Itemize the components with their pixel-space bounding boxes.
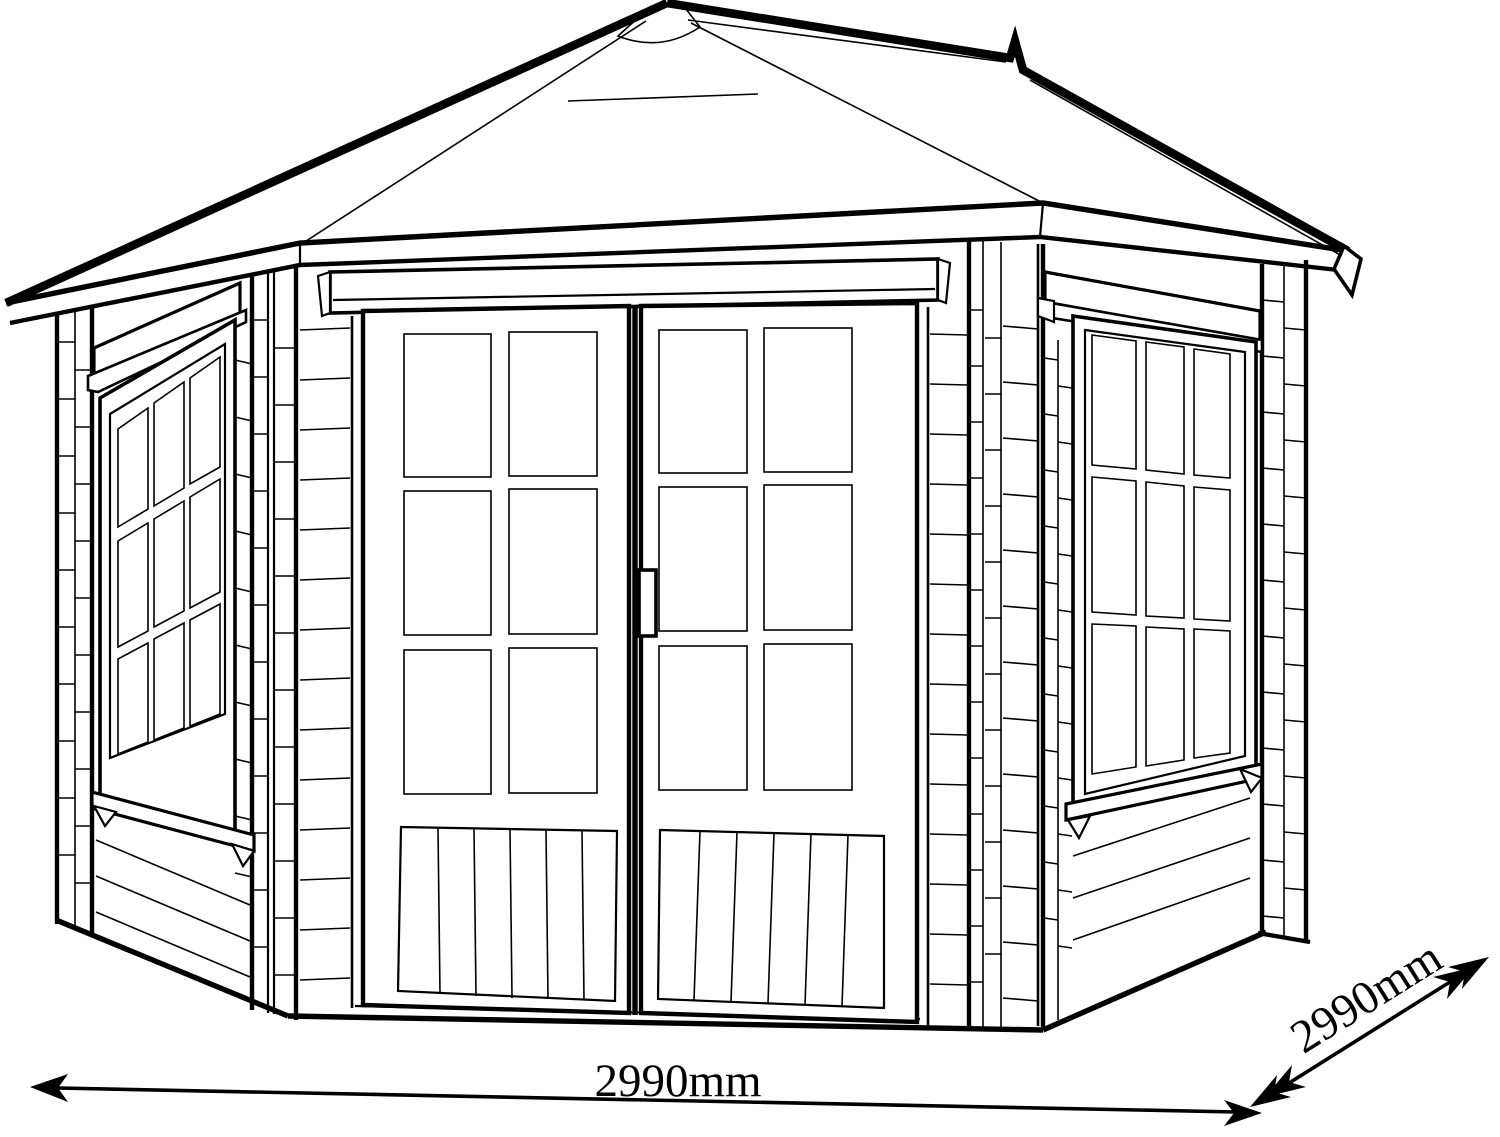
door-handle bbox=[639, 570, 656, 636]
summerhouse-dimension-diagram: 2990mm 2990mm bbox=[0, 0, 1500, 1137]
fascia-corner-joints bbox=[300, 203, 1043, 265]
right-wall-cladding-below-window bbox=[1073, 798, 1250, 940]
left-window bbox=[88, 283, 254, 866]
apex-cap bbox=[618, 6, 700, 43]
front-cladding-left-strip bbox=[300, 328, 350, 980]
base-front-edge bbox=[288, 1016, 1043, 1030]
left-wall-cladding-strip bbox=[235, 360, 252, 877]
right-window-frame bbox=[1073, 316, 1256, 808]
door-leaf-left bbox=[363, 306, 629, 1013]
left-window-frame bbox=[100, 320, 235, 836]
right-window bbox=[1038, 272, 1262, 838]
roof-edge-left bbox=[6, 3, 667, 303]
width-dimension-label: 2990mm bbox=[594, 1055, 761, 1107]
door-pelmet-return-right bbox=[938, 259, 950, 303]
corner-post-right-mids bbox=[983, 241, 1001, 1029]
depth-arrowhead-lower-2 bbox=[1265, 1065, 1306, 1097]
roof-edge-right bbox=[667, 3, 1348, 251]
width-dimension: 2990mm bbox=[30, 1055, 1262, 1126]
double-doors bbox=[363, 303, 917, 1022]
door-leaf-right bbox=[641, 303, 917, 1022]
roof-board-seam bbox=[568, 94, 758, 101]
door-pelmet-return-left bbox=[318, 272, 330, 316]
depth-dimension: 2990mm bbox=[1250, 931, 1489, 1107]
left-wall-cladding-below-window bbox=[96, 840, 250, 977]
right-window-pelmet-return bbox=[1038, 298, 1054, 322]
front-cladding-right-strip bbox=[930, 334, 967, 985]
right-window-sill-drip-left bbox=[1068, 816, 1090, 838]
hip-line-left bbox=[303, 21, 646, 243]
corner-post-left-mids bbox=[268, 271, 274, 1014]
corner-post-right-logends bbox=[969, 310, 1038, 1001]
corner-post-right-edges bbox=[969, 240, 1043, 1028]
base-right-edge bbox=[1043, 932, 1266, 1030]
hip-line-right bbox=[691, 23, 1043, 203]
